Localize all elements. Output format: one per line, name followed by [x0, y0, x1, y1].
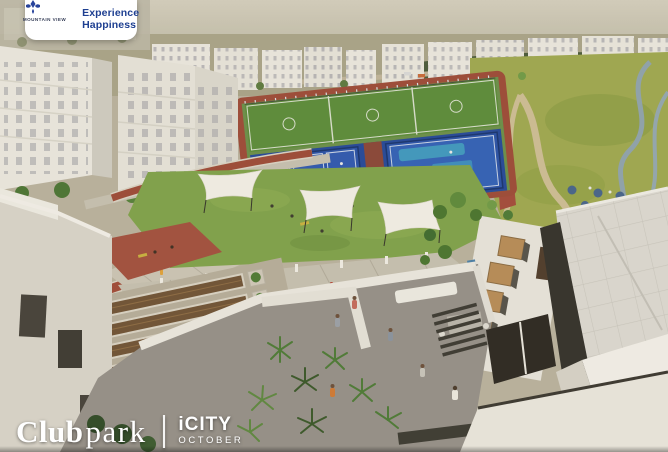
- location-name: iCITY: [178, 415, 243, 434]
- poster: MOUNTAIN VIEW Experience Happiness Clubp…: [0, 0, 668, 452]
- logo-block: MOUNTAIN VIEW: [23, 16, 66, 22]
- tagline-line2: Happiness: [82, 20, 139, 32]
- project-name-bold: Club: [16, 416, 83, 447]
- location-sub: OCTOBER: [178, 436, 243, 446]
- project-name-light: park: [85, 416, 146, 447]
- logo-wordmark: MOUNTAIN VIEW: [23, 17, 66, 22]
- aerial-render: [0, 0, 668, 452]
- brand-card: MOUNTAIN VIEW Experience Happiness: [25, 0, 137, 40]
- location-block: iCITY OCTOBER: [178, 415, 243, 448]
- project-lockup: Clubpark | iCITY OCTOBER: [16, 415, 243, 448]
- tone-overlay: [0, 0, 668, 452]
- brand-tagline: Experience Happiness: [82, 8, 139, 32]
- lockup-divider: |: [161, 411, 168, 446]
